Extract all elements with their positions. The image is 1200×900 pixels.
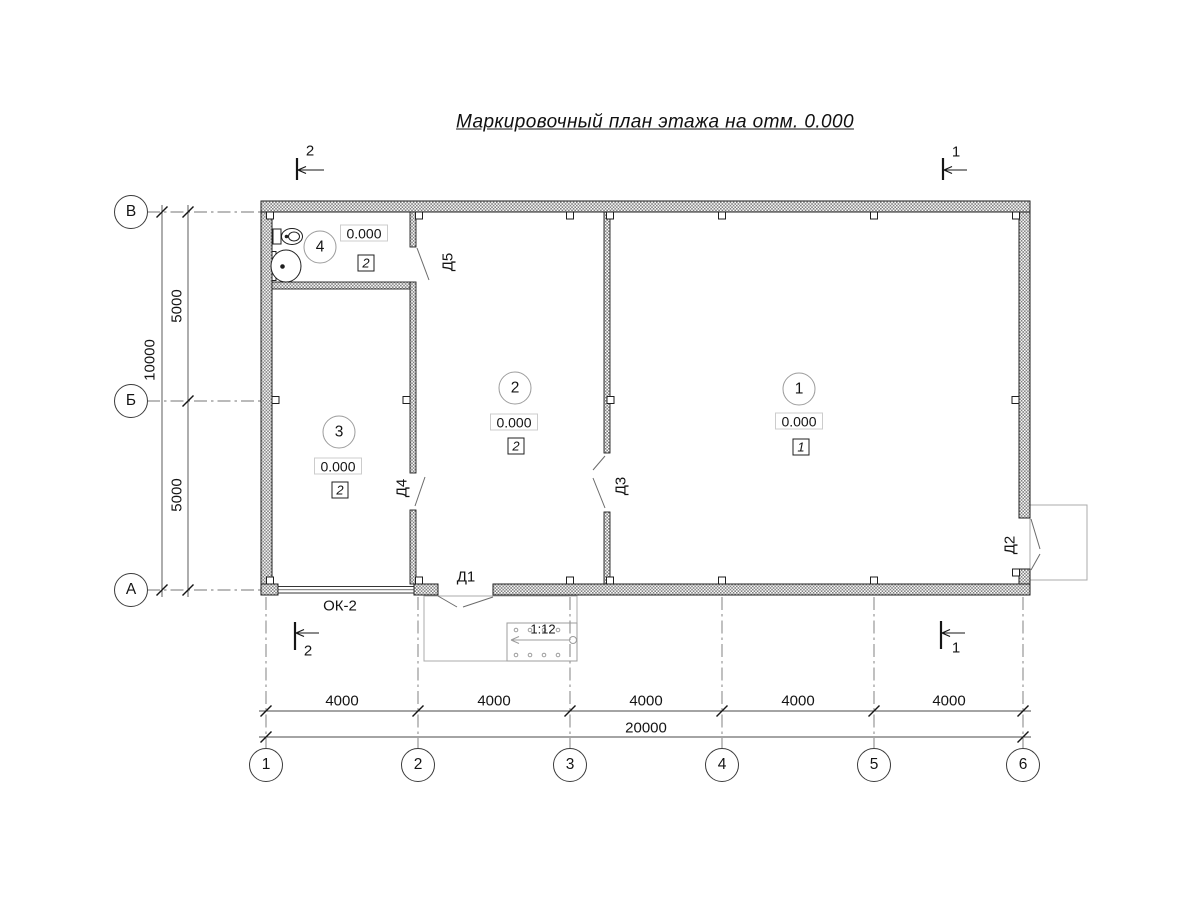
door-label-d3: Д3: [614, 477, 629, 496]
dim-left-span-2: 5000: [170, 478, 185, 511]
room-2-number: 2: [499, 372, 532, 405]
axis-bubble-4: 4: [705, 748, 739, 782]
sink-icon: [271, 250, 301, 282]
room-4-floor-type: 2: [358, 255, 375, 272]
dim-total: 20000: [625, 721, 667, 736]
room-2-elevation: 0.000: [490, 414, 538, 431]
axis-bubble-b: Б: [114, 384, 148, 418]
axis-grid-lines: [147, 212, 1023, 748]
ramp-slope-label: 1:12: [530, 623, 555, 636]
room-4-number: 4: [304, 231, 337, 264]
axis-bubble-a: А: [114, 573, 148, 607]
axis-bubble-6: 6: [1006, 748, 1040, 782]
axis-bubble-5: 5: [857, 748, 891, 782]
exterior-walls: [261, 201, 1030, 595]
door-label-d1: Д1: [457, 570, 476, 585]
section-mark-top-right: [943, 158, 967, 180]
window-symbol: [278, 587, 414, 594]
room-4-elevation: 0.000: [340, 225, 388, 242]
dim-span-2: 4000: [477, 694, 510, 709]
dim-left-total: 10000: [143, 339, 158, 381]
room-1-number: 1: [783, 373, 816, 406]
section-mark-top-left: [297, 158, 324, 180]
axis-bubble-v: В: [114, 195, 148, 229]
door-label-d2: Д2: [1003, 536, 1018, 555]
junction-squares: [267, 212, 1020, 584]
room-2-floor-type: 2: [508, 438, 525, 455]
section-label-bottom-right: 1: [952, 641, 960, 656]
dim-span-1: 4000: [325, 694, 358, 709]
section-label-top-left: 2: [306, 144, 314, 159]
section-label-bottom-left: 2: [304, 644, 312, 659]
axis-bubble-3: 3: [553, 748, 587, 782]
axis-bubble-1: 1: [249, 748, 283, 782]
dim-span-4: 4000: [781, 694, 814, 709]
door-label-d4: Д4: [395, 479, 410, 498]
window-label: ОК-2: [323, 599, 357, 614]
room-1-floor-type: 1: [793, 439, 810, 456]
door-label-d5: Д5: [441, 253, 456, 272]
dim-span-5: 4000: [932, 694, 965, 709]
axis-bubble-2: 2: [401, 748, 435, 782]
dim-left-span-1: 5000: [170, 289, 185, 322]
toilet-icon: [273, 229, 303, 245]
drawing-title: Маркировочный план этажа на отм. 0.000: [456, 113, 854, 132]
room-3-elevation: 0.000: [314, 458, 362, 475]
section-mark-arrows: [295, 158, 967, 650]
room-1-elevation: 0.000: [775, 413, 823, 430]
floor-plan-sheet: Маркировочный план этажа на отм. 0.000 В…: [0, 0, 1200, 900]
room-3-number: 3: [323, 416, 356, 449]
section-label-top-right: 1: [952, 145, 960, 160]
room-3-floor-type: 2: [332, 482, 349, 499]
entrance-porch: [424, 505, 1087, 661]
dim-span-3: 4000: [629, 694, 662, 709]
